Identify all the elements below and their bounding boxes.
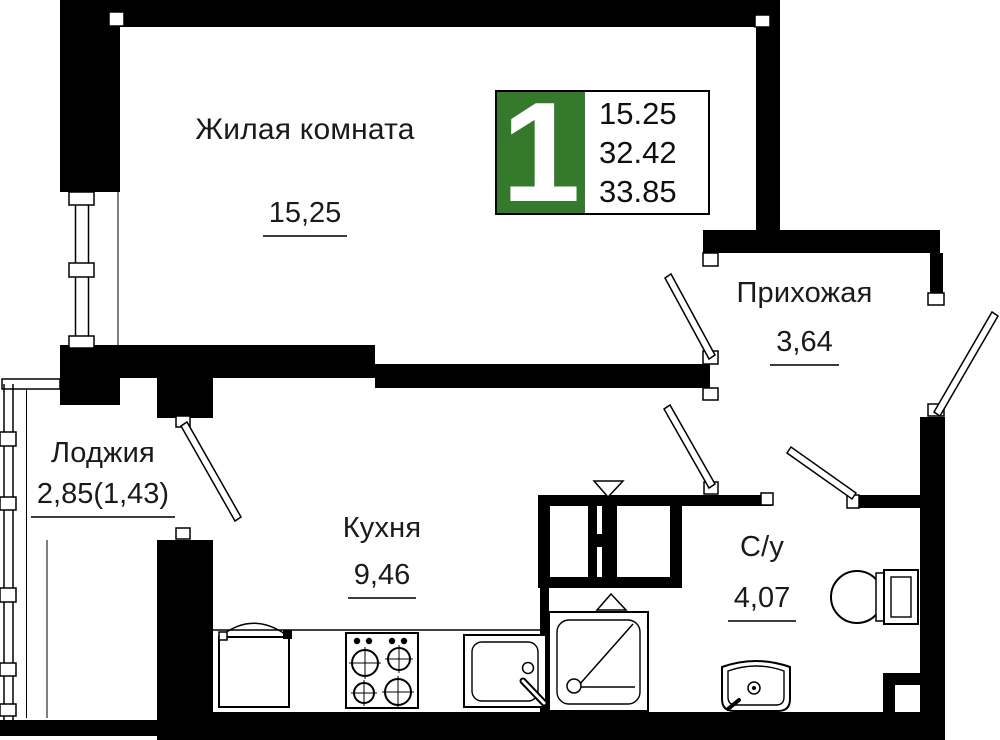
bathroom-sink <box>722 661 790 711</box>
room-area-living: 15,25 <box>263 197 348 237</box>
floor-plan: Жилая комната 15,25 Прихожая 3,64 Лоджия… <box>0 0 1000 740</box>
area-stats: 15.25 32.42 33.85 <box>585 92 708 213</box>
room-area-loggia: 2,85(1,43) <box>31 478 175 518</box>
room-label-loggia: Лоджия 2,85(1,43) <box>12 437 194 518</box>
living-room-door <box>665 274 715 359</box>
entrance-door <box>934 312 998 416</box>
room-area-hallway: 3,64 <box>770 326 838 366</box>
vent-arrow-up-icon <box>597 594 626 610</box>
room-name-kitchen: Кухня <box>292 512 472 545</box>
room-area-bathroom: 4,07 <box>728 582 796 622</box>
room-label-living: Жилая комната 15,25 <box>150 113 460 237</box>
walls <box>0 0 945 740</box>
room-name-bathroom: С/у <box>692 531 832 564</box>
area-stat-no-loggia: 32.42 <box>599 133 708 172</box>
bathroom-door <box>787 447 856 499</box>
apartment-info-badge: 1 15.25 32.42 33.85 <box>495 90 710 215</box>
room-label-kitchen: Кухня 9,46 <box>292 512 472 599</box>
area-stat-total: 33.85 <box>599 172 708 211</box>
room-name-living: Жилая комната <box>150 113 460 147</box>
toilet <box>831 570 918 624</box>
shower-tray <box>549 612 648 711</box>
living-room-window <box>69 192 118 348</box>
loggia-glazing <box>0 379 60 720</box>
room-name-loggia: Лоджия <box>12 437 194 470</box>
room-label-bathroom: С/у 4,07 <box>692 531 832 622</box>
room-label-hallway: Прихожая 3,64 <box>712 277 897 366</box>
room-name-hallway: Прихожая <box>712 277 897 310</box>
kitchen-sink <box>464 635 546 707</box>
room-area-kitchen: 9,46 <box>348 559 416 599</box>
fridge <box>219 623 292 707</box>
area-stat-living: 15.25 <box>599 94 708 133</box>
kitchen-door <box>664 405 715 488</box>
room-count-badge: 1 <box>497 92 585 213</box>
stove <box>346 633 418 708</box>
vent-arrow-down-icon <box>594 481 623 497</box>
room-count-value: 1 <box>502 103 581 203</box>
